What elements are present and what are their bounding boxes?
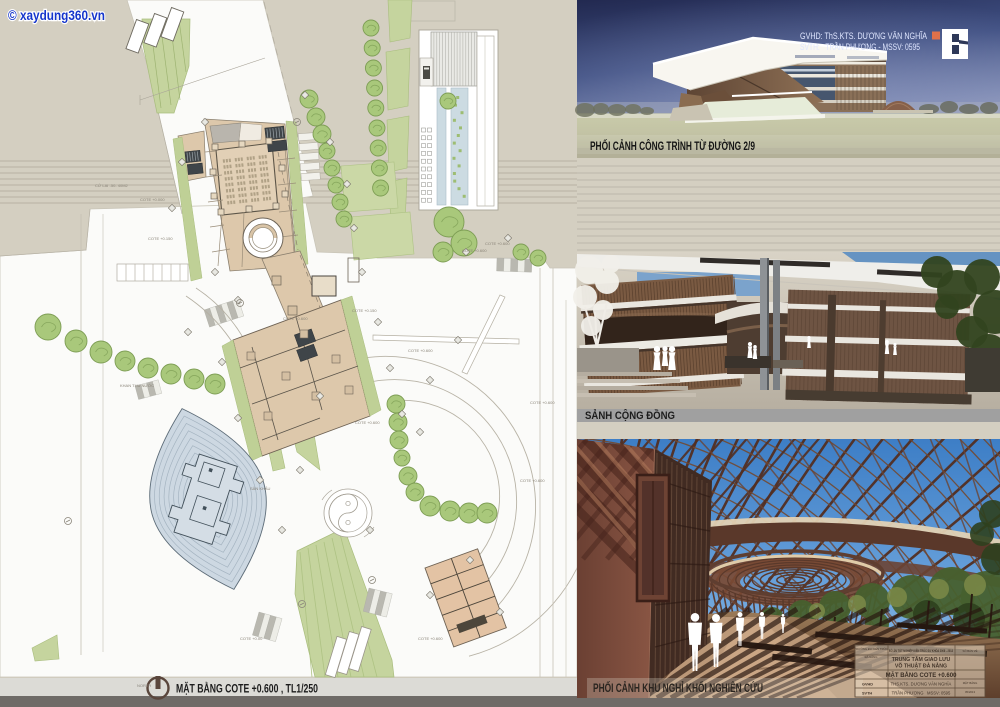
svg-text:KHAN THU NƯỚC: KHAN THU NƯỚC xyxy=(120,383,154,388)
svg-text:COTE +0.600: COTE +0.600 xyxy=(283,316,308,321)
svg-text:MẶT BẰNG COTE +0.600: MẶT BẰNG COTE +0.600 xyxy=(886,671,958,679)
svg-text:SỐ BẢN VẼ: SỐ BẢN VẼ xyxy=(962,648,977,653)
svg-text:MẶT BẰNG: MẶT BẰNG xyxy=(963,680,978,685)
svg-text:NORTH: NORTH xyxy=(137,683,151,688)
svg-text:COTE +0.000: COTE +0.000 xyxy=(140,197,165,202)
svg-text:TRƯỜNG ĐH KIẾN TRÚC: TRƯỜNG ĐH KIẾN TRÚC xyxy=(854,646,887,651)
svg-text:05/2013: 05/2013 xyxy=(965,690,976,694)
svg-text:PHỐI CẢNH KHU NGHỈ KHỐI NGHIÊN: PHỐI CẢNH KHU NGHỈ KHỐI NGHIÊN CỨU xyxy=(593,680,763,695)
svg-text:GVHD: ThS.KTS. DƯƠNG VĂN NGHĨA: GVHD: ThS.KTS. DƯƠNG VĂN NGHĨA xyxy=(800,31,927,41)
svg-text:COTE +0.600: COTE +0.600 xyxy=(418,636,443,641)
svg-text:COTE +0.600: COTE +0.600 xyxy=(355,420,380,425)
svg-text:THS.KTS. DƯƠNG VĂN NGHĨA: THS.KTS. DƯƠNG VĂN NGHĨA xyxy=(891,682,952,687)
svg-text:COTE +0.600: COTE +0.600 xyxy=(462,248,487,253)
svg-text:© xaydung360.vn: © xaydung360.vn xyxy=(8,7,105,23)
svg-text:GVHD: GVHD xyxy=(862,683,873,687)
svg-text:COTE +0.150: COTE +0.150 xyxy=(148,236,173,241)
svg-text:TRUNG TÂM GIAO LƯU: TRUNG TÂM GIAO LƯU xyxy=(892,656,951,663)
svg-text:MẶT BẰNG COTE +0.600 , TL1/250: MẶT BẰNG COTE +0.600 , TL1/250 xyxy=(176,683,318,696)
svg-text:COTE +0.150: COTE +0.150 xyxy=(352,308,377,313)
svg-text:PHỐI CẢNH CÔNG TRÌNH TỪ ĐƯỜNG: PHỐI CẢNH CÔNG TRÌNH TỪ ĐƯỜNG 2/9 xyxy=(590,138,755,153)
svg-text:CỬ LAI -50- 40M2: CỬ LAI -50- 40M2 xyxy=(95,183,129,188)
svg-text:COTE +0.600: COTE +0.600 xyxy=(485,241,510,246)
svg-text:ĐÀ NẴNG: ĐÀ NẴNG xyxy=(865,654,878,659)
svg-text:VÕ THUẬT ĐÀ NẴNG: VÕ THUẬT ĐÀ NẴNG xyxy=(895,663,947,670)
svg-text:TRẦN PHƯƠNG MSSV: 0595: TRẦN PHƯƠNG MSSV: 0595 xyxy=(892,691,951,696)
svg-text:SÂN KHẤU: SÂN KHẤU xyxy=(250,486,271,491)
svg-text:SVTH: TRẦN PHƯƠNG - MSSV: 05: SVTH: TRẦN PHƯƠNG - MSSV: 0595 xyxy=(800,42,920,52)
svg-text:COTE +0.600: COTE +0.600 xyxy=(408,348,433,353)
svg-text:COTE +0.00: COTE +0.00 xyxy=(240,636,263,641)
svg-text:ĐỒ ÁN TỐT NGHIỆP KIẾN TRÚC SƯ: ĐỒ ÁN TỐT NGHIỆP KIẾN TRÚC SƯ KHÓA 2008 … xyxy=(889,648,953,653)
svg-text:COTE +0.600: COTE +0.600 xyxy=(520,478,545,483)
svg-text:SVTH: SVTH xyxy=(862,692,872,696)
svg-text:COTE +0.600: COTE +0.600 xyxy=(530,400,555,405)
svg-text:SẢNH CỘNG ĐỒNG: SẢNH CỘNG ĐỒNG xyxy=(585,409,675,422)
